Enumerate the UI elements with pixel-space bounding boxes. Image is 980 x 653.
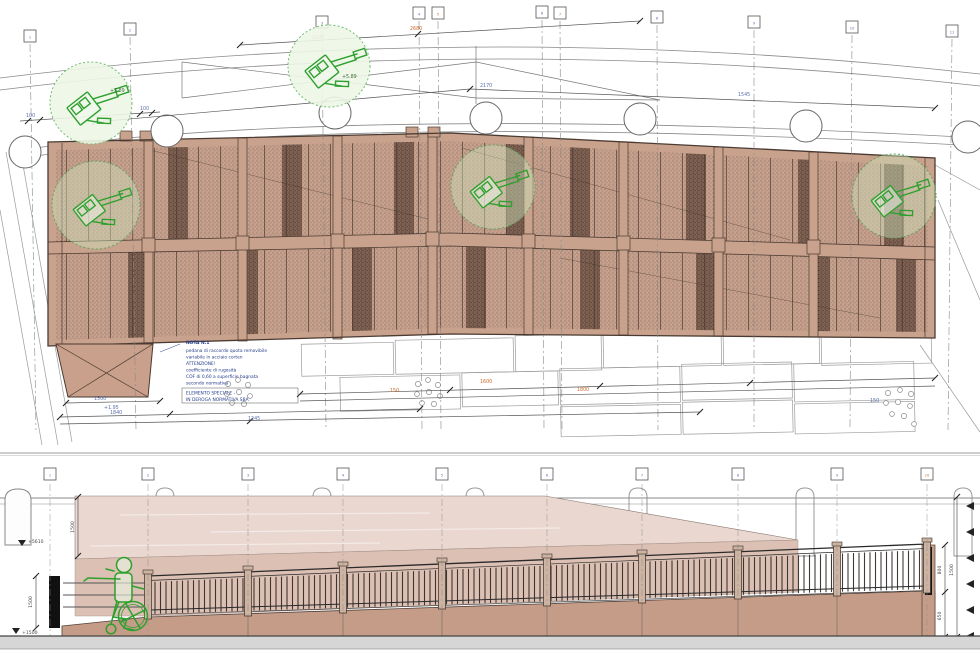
grid-label: 11 — [950, 31, 955, 35]
note-special: IN DEROGA NORMATIVA SBA — [186, 397, 249, 403]
dim-label: 2680 — [410, 26, 422, 32]
view-separator — [0, 453, 980, 456]
level-label: +5.89 — [342, 74, 357, 80]
dim-label: 100 — [26, 113, 35, 119]
dim-label: 1245 — [248, 416, 260, 422]
note-block: NOTA N.1 pedana di raccordo quota removi… — [160, 340, 298, 403]
drawing-svg: 1 2 3 4 5 6 7 8 9 10 11 — [0, 0, 980, 653]
grid-label: 2 — [147, 474, 149, 478]
note-special: ELEMENTO SPECIALE - — [186, 391, 236, 397]
dim-label: 1500 — [28, 596, 34, 608]
dim-label: 1500 — [949, 564, 955, 576]
plan-view: 1 2 3 4 5 6 7 8 9 10 11 — [0, 6, 980, 445]
grid-label: 1 — [49, 474, 51, 478]
note-line: secondo normativa — [186, 381, 228, 387]
dim-label: 150 — [870, 398, 879, 404]
dim-label: 1600 — [480, 379, 492, 385]
dim-label: 1545 — [738, 92, 750, 98]
grid-label: 7 — [559, 13, 561, 17]
ground-strip — [0, 636, 980, 649]
grid-label: 7 — [641, 474, 643, 478]
dim-label: 1800 — [577, 387, 589, 393]
grid-label: 10 — [850, 27, 855, 31]
grid-label: 5 — [437, 13, 439, 17]
dim-label: 1500 — [70, 521, 76, 533]
dim-label: 2170 — [480, 83, 492, 89]
dim-label: 100 — [140, 106, 149, 112]
grid-label: 2 — [129, 29, 131, 33]
grid-label: 3 — [247, 474, 249, 478]
level-label: +5610 — [28, 539, 44, 545]
note-line: coefficiente di rugosità — [186, 367, 237, 374]
dim-label: 1500 — [94, 396, 106, 402]
bollard-icon — [5, 489, 31, 545]
left-wall-section — [49, 576, 60, 628]
grid-label: 3 — [321, 22, 323, 26]
grid-label: 5 — [441, 474, 443, 478]
grid-label: 1 — [29, 36, 31, 40]
grid-label: 10 — [925, 474, 930, 478]
level-label: +5.89 — [110, 88, 125, 94]
landing-platform — [56, 344, 153, 397]
dim-label: +1.95 — [104, 405, 119, 411]
dim-label: 800 — [937, 566, 943, 575]
cad-drawing-canvas: 1 2 3 4 5 6 7 8 9 10 11 — [0, 0, 980, 653]
note-line: variabile in acciaio corten — [186, 355, 243, 361]
note-line: COF di 0,60 a superficie bagnata — [186, 374, 258, 380]
paving-slabs — [301, 325, 933, 444]
note-title: NOTA N.1 — [186, 340, 209, 346]
dim-label: 150 — [390, 388, 399, 394]
elevation-view: 1500 1500 +5610 +1500 800 650 1500 — [0, 468, 980, 649]
dim-label: 650 — [937, 612, 943, 621]
note-line: ATTENZIONE! — [186, 361, 216, 367]
note-line: pedana di raccordo quota removibile — [186, 348, 267, 354]
level-label: +1500 — [22, 630, 38, 636]
